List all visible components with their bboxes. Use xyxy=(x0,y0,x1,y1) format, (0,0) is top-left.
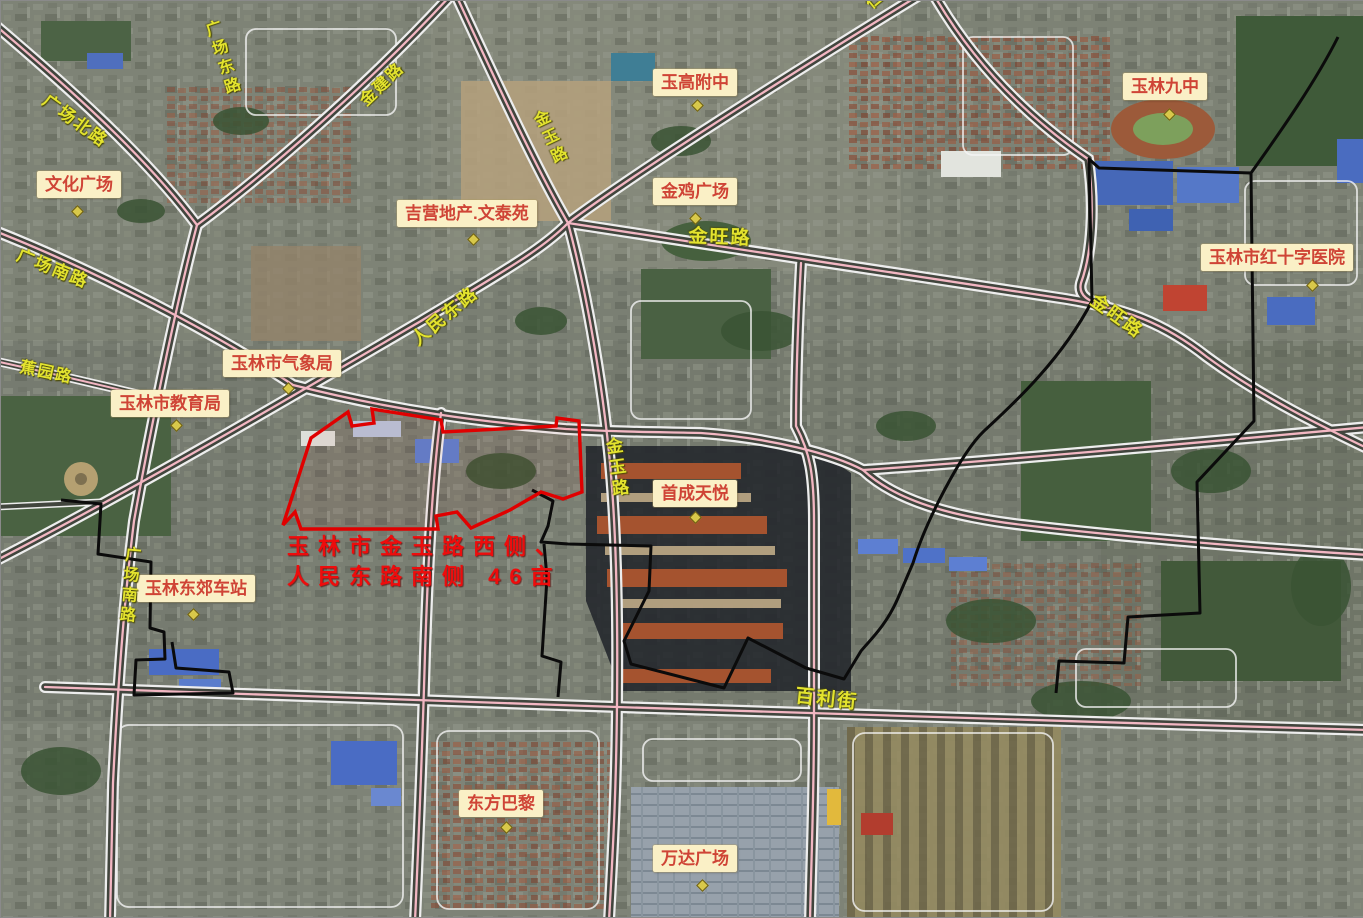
road-label-4: 人民东路 xyxy=(405,280,483,351)
place-marker-wanda-plaza xyxy=(696,879,709,892)
road-label-8: 百利街 xyxy=(794,681,859,714)
road-label-12: 仁东路 xyxy=(859,0,916,13)
place-label-shoucheng-tianyue: 首成天悦 xyxy=(653,480,737,507)
road-label-11: 蕉园路 xyxy=(18,353,76,388)
parcel-annotation-line2: 人民东路南侧 46亩 xyxy=(287,562,566,592)
place-label-wanda-plaza: 万达广场 xyxy=(653,845,737,872)
place-label-meteorological-bureau: 玉林市气象局 xyxy=(223,350,341,377)
road-label-7: 金旺路 xyxy=(1086,287,1150,343)
parcel-annotation-line1: 玉林市金玉路西侧、 xyxy=(287,532,566,562)
place-label-jiying-property: 吉营地产.文泰苑 xyxy=(397,200,537,227)
place-label-yulin-no9-school: 玉林九中 xyxy=(1123,73,1207,100)
place-marker-yulin-no9-school xyxy=(1163,108,1176,121)
parcel-annotation: 玉林市金玉路西侧、 人民东路南侧 46亩 xyxy=(287,532,566,592)
road-label-2: 金建路 xyxy=(353,55,409,110)
place-marker-shoucheng-tianyue xyxy=(689,511,702,524)
road-label-9: 广场南路 xyxy=(14,241,94,293)
road-label-0: 广场北路 xyxy=(38,87,114,152)
place-label-yugao-fuzhong: 玉高附中 xyxy=(653,69,737,96)
place-label-education-bureau: 玉林市教育局 xyxy=(111,390,229,417)
place-label-wenhua-square: 文化广场 xyxy=(37,171,121,198)
road-label-6: 金玉路 xyxy=(599,436,633,502)
road-label-10: 广场南路 xyxy=(112,545,143,627)
road-label-3: 金玉路 xyxy=(525,107,572,172)
map-viewport: 玉林市金玉路西侧、 人民东路南侧 46亩 文化广场吉营地产.文泰苑玉高附中金鸡广… xyxy=(0,0,1363,918)
place-marker-education-bureau xyxy=(170,419,183,432)
place-label-dongjiao-bus-station: 玉林东郊车站 xyxy=(137,575,255,602)
place-marker-wenhua-square xyxy=(71,205,84,218)
place-marker-meteorological-bureau xyxy=(282,382,295,395)
place-marker-yugao-fuzhong xyxy=(691,99,704,112)
place-marker-dongjiao-bus-station xyxy=(187,608,200,621)
place-label-red-cross-hospital: 玉林市红十字医院 xyxy=(1201,244,1353,271)
road-label-5: 金旺路 xyxy=(688,221,752,250)
place-label-jinji-square: 金鸡广场 xyxy=(653,178,737,205)
place-marker-jiying-property xyxy=(467,233,480,246)
place-marker-red-cross-hospital xyxy=(1306,279,1319,292)
place-marker-oriental-paris xyxy=(500,821,513,834)
place-label-oriental-paris: 东方巴黎 xyxy=(459,790,543,817)
road-label-1: 广场东路 xyxy=(197,18,245,102)
map-annotation-layer: 玉林市金玉路西侧、 人民东路南侧 46亩 文化广场吉营地产.文泰苑玉高附中金鸡广… xyxy=(1,1,1363,917)
